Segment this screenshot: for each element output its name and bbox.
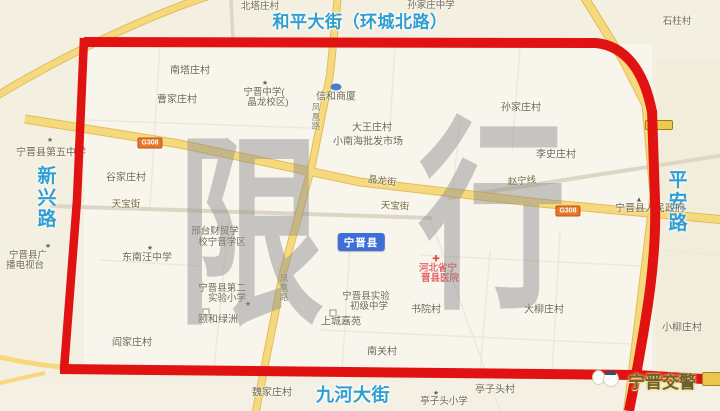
police-cartoon-icon: [603, 371, 619, 387]
boundary-left: [64, 38, 84, 370]
police-watermark: 宁晋交警: [588, 364, 720, 392]
restriction-boundary: [0, 0, 720, 411]
gold-badge-icon: [702, 372, 720, 386]
map-canvas: 北塔庄村 孙家庄中学 石柱村 和平大街（环城北路） 南塔庄村 曹家庄村 ★ 宁晋…: [0, 0, 720, 411]
police-logo-text: 宁晋交警: [628, 368, 696, 393]
boundary-top: [84, 42, 652, 112]
